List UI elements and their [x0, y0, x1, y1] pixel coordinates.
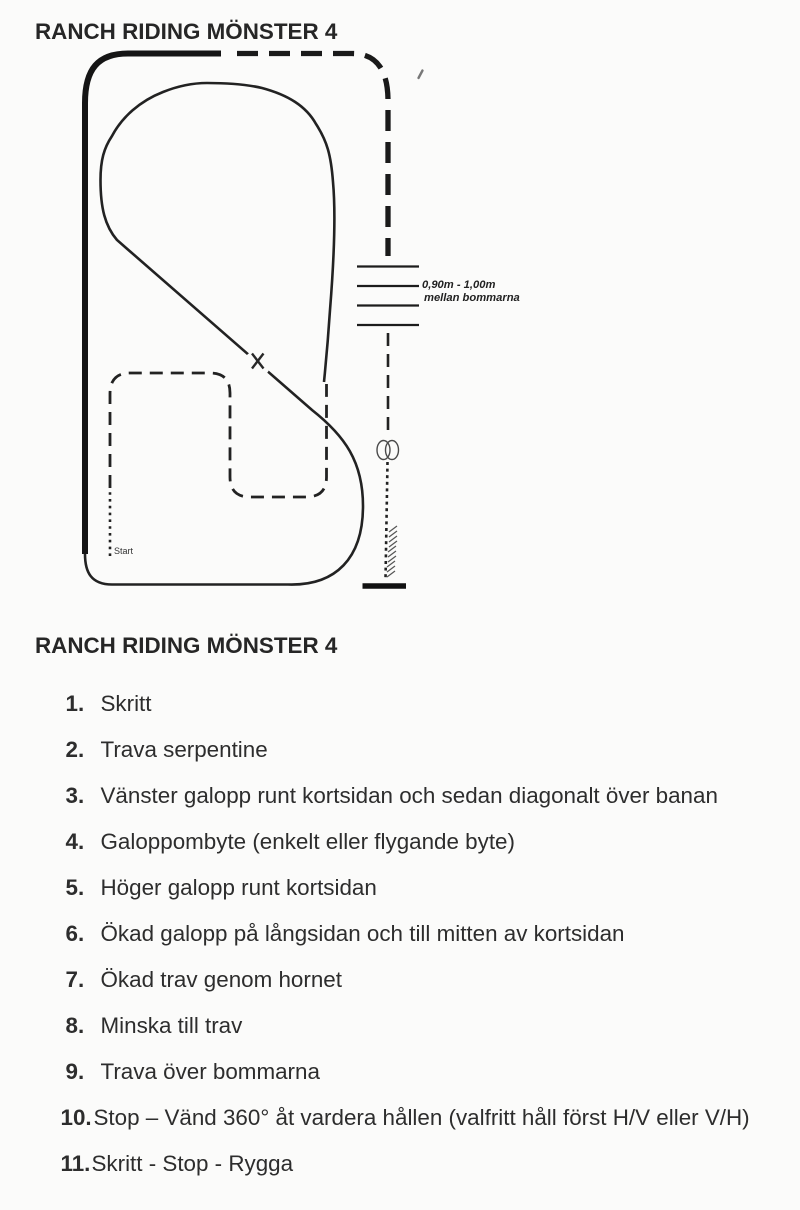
svg-text:0,90m - 1,00m: 0,90m - 1,00m — [422, 279, 495, 291]
svg-text:mellan bommarna: mellan bommarna — [424, 292, 520, 304]
svg-text:Start: Start — [114, 546, 134, 556]
